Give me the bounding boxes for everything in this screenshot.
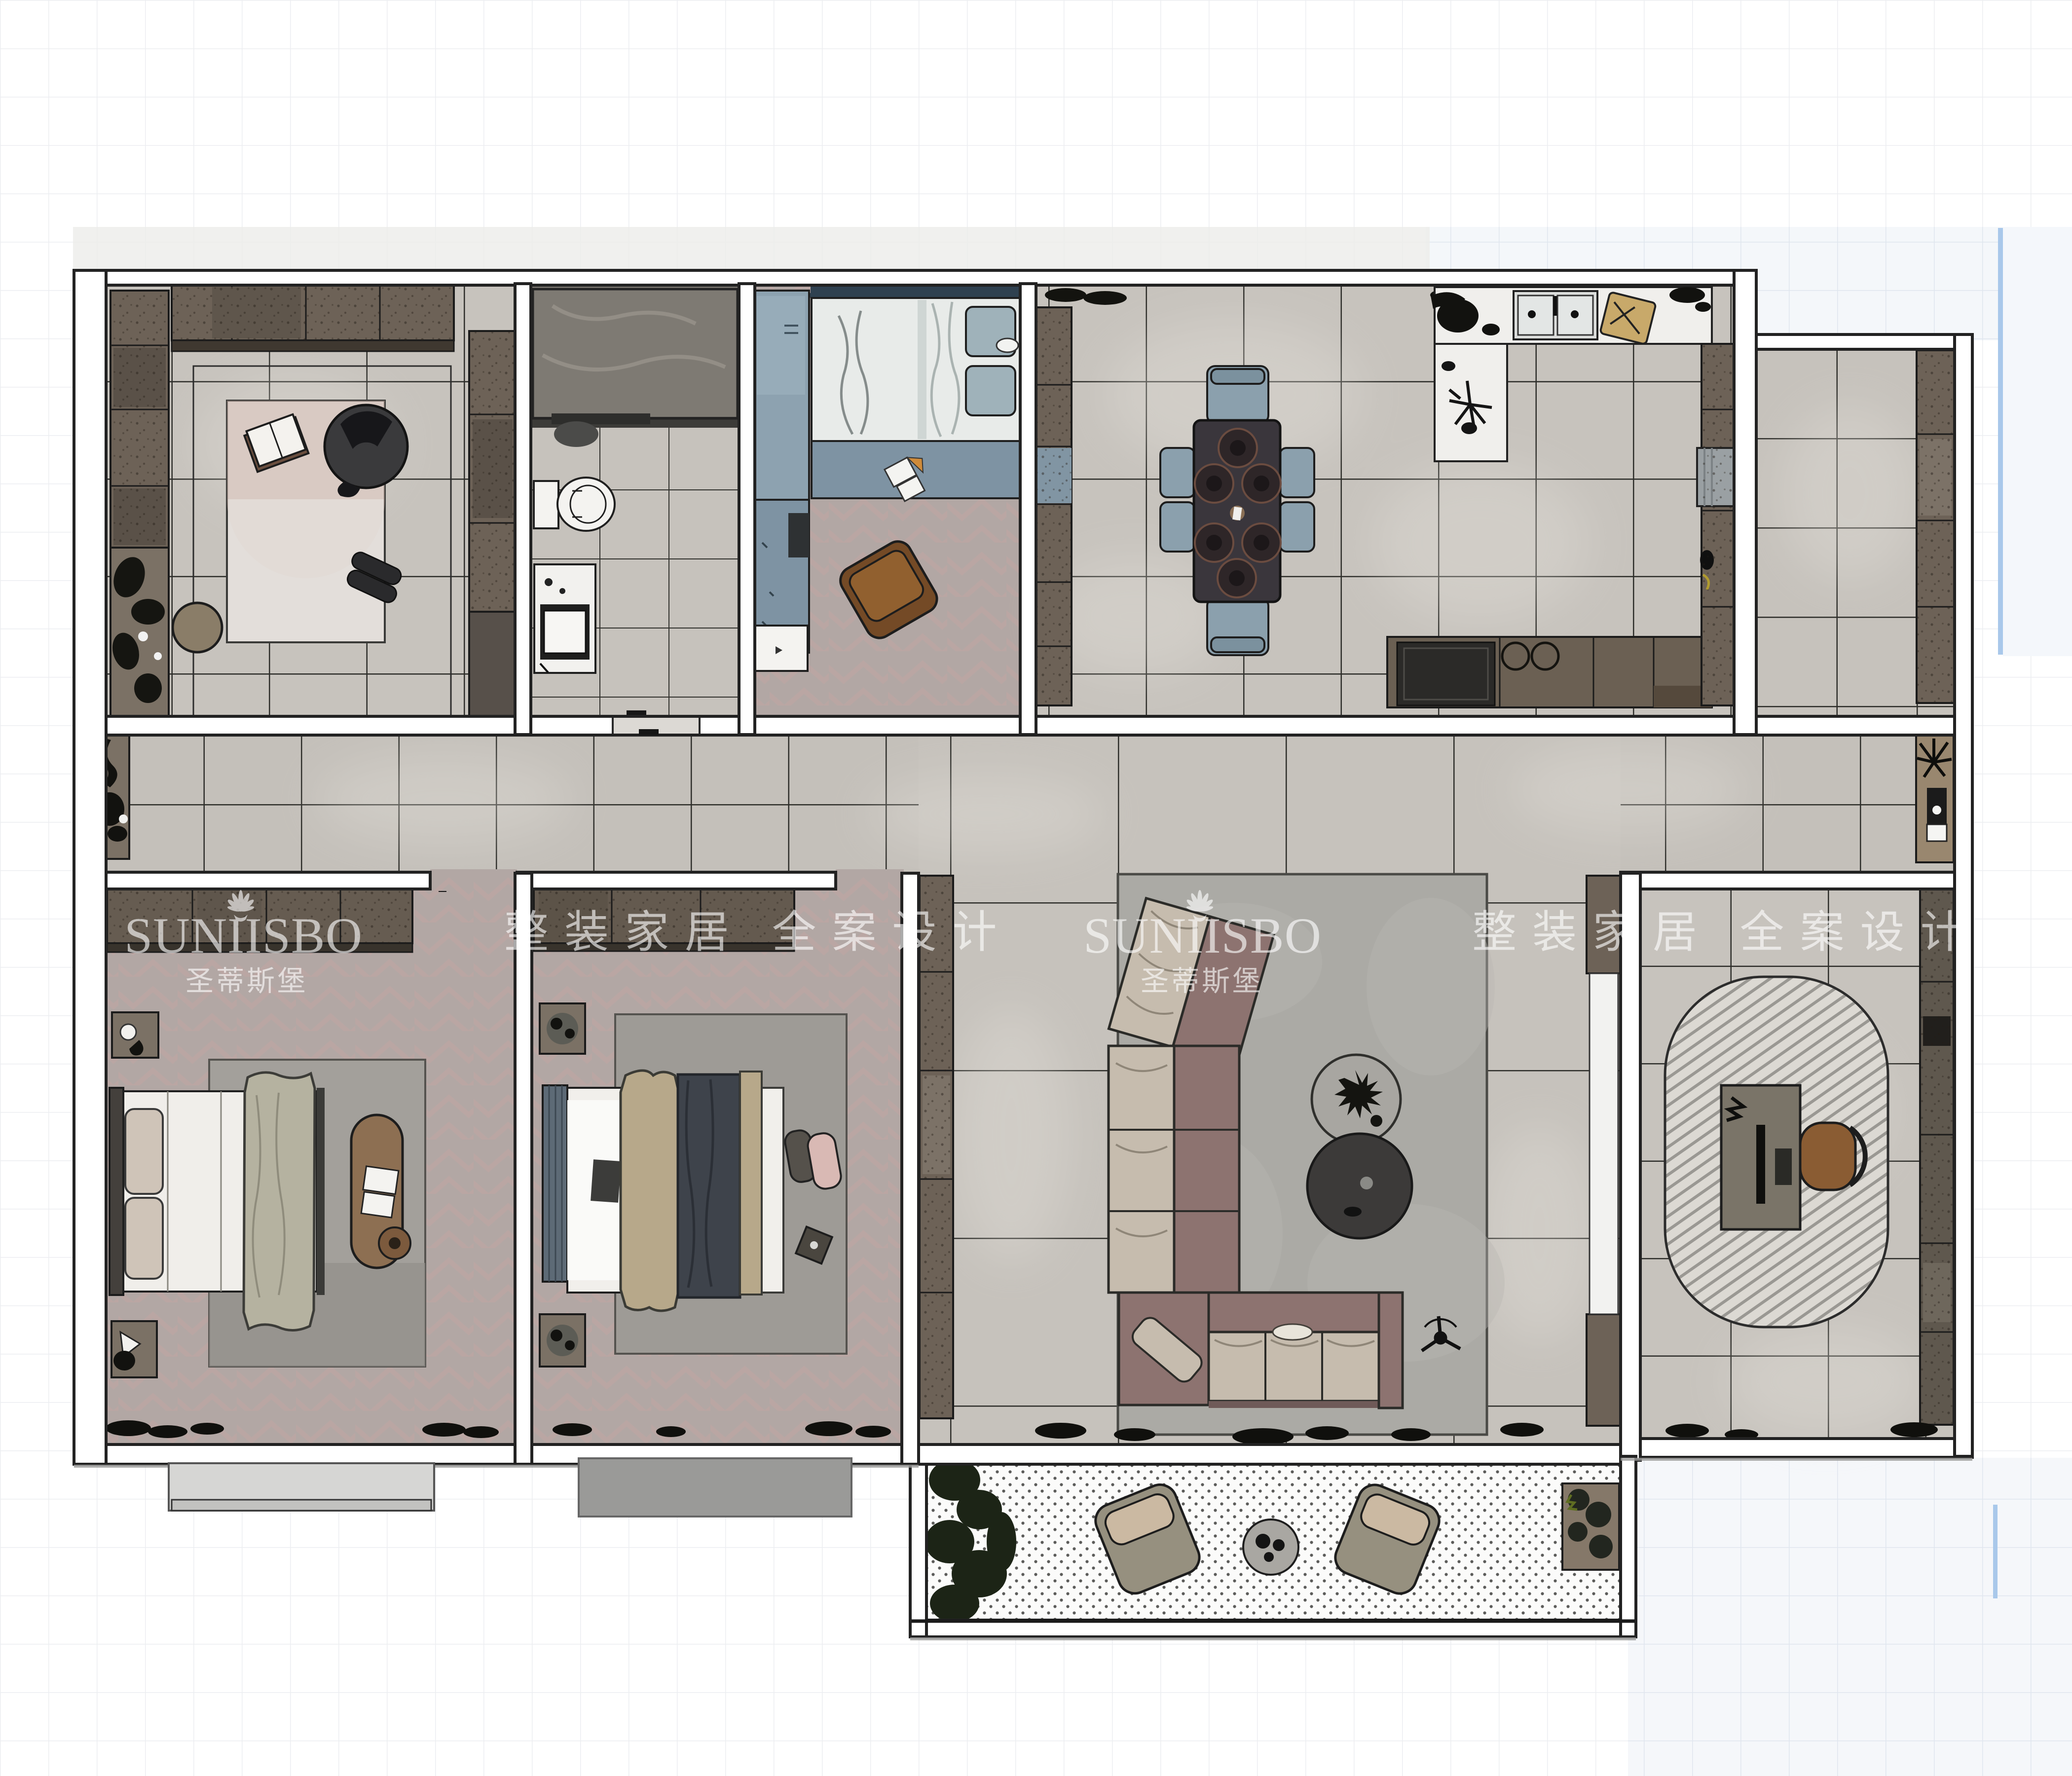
svg-text:圣蒂斯堡: 圣蒂斯堡 [1141, 966, 1263, 997]
svg-text:圣蒂斯堡: 圣蒂斯堡 [185, 966, 308, 997]
svg-text:整装家居 全案设计: 整装家居 全案设计 [1472, 908, 1981, 957]
svg-text:SUNIISBO: SUNIISBO [1083, 908, 1322, 964]
svg-text:SUNIISBO: SUNIISBO [124, 908, 363, 964]
svg-text:整装家居 全案设计: 整装家居 全案设计 [504, 908, 1013, 957]
